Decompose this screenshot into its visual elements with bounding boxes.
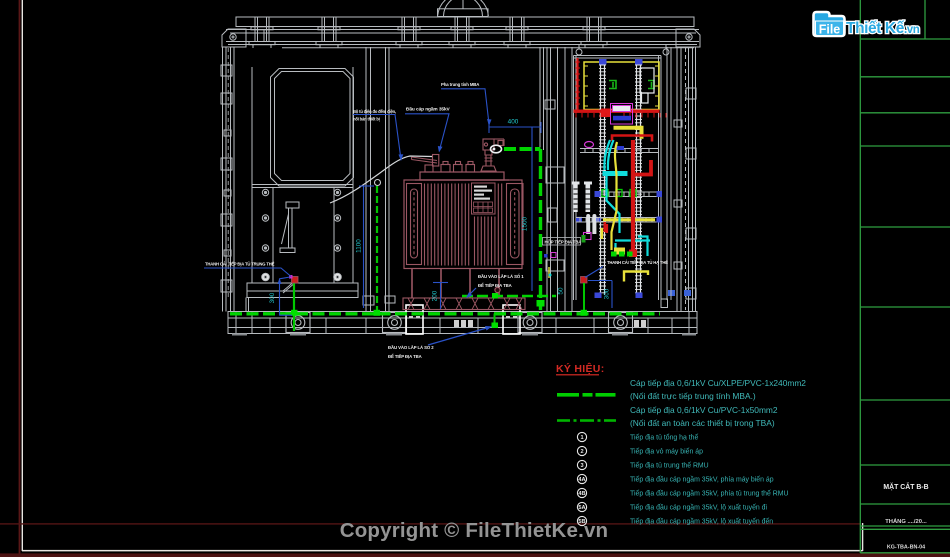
svg-text:(Nối đất trực tiếp trung tính: (Nối đất trực tiếp trung tính MBA.) — [630, 391, 756, 401]
svg-text:Tiếp địa đầu cáp ngầm 35kV, ph: Tiếp địa đầu cáp ngầm 35kV, phía máy biế… — [630, 475, 774, 484]
svg-text:50: 50 — [558, 287, 565, 295]
svg-text:400: 400 — [508, 119, 519, 126]
svg-text:300: 300 — [604, 288, 611, 299]
svg-text:Tiếp địa đầu cáp ngầm 35kV, ph: Tiếp địa đầu cáp ngầm 35kV, phía tủ trun… — [630, 489, 788, 498]
svg-text:ĐẦU VÀO LẮP LÁ SỐ 2: ĐẦU VÀO LẮP LÁ SỐ 2 — [388, 345, 434, 350]
svg-text:Pha trung tính MBA: Pha trung tính MBA — [441, 82, 479, 87]
svg-text:Tiếp địa tủ tổng hạ thế: Tiếp địa tủ tổng hạ thế — [630, 433, 698, 442]
svg-text:Tiếp địa tủ trung thế RMU: Tiếp địa tủ trung thế RMU — [630, 461, 709, 470]
svg-text:1: 1 — [580, 435, 583, 441]
svg-text:Đầu cáp ngầm 35kV: Đầu cáp ngầm 35kV — [406, 107, 451, 113]
svg-text:1100: 1100 — [356, 239, 363, 253]
svg-text:3: 3 — [580, 463, 583, 469]
svg-text:ĐẦU VÀO LẮP LÁ SỐ 1: ĐẦU VÀO LẮP LÁ SỐ 1 — [478, 274, 524, 279]
svg-text:300: 300 — [269, 292, 276, 303]
svg-text:2: 2 — [580, 449, 583, 455]
svg-text:Tiếp địa đầu cáp ngầm 35kV, lộ: Tiếp địa đầu cáp ngầm 35kV, lộ xuất tuyế… — [630, 517, 773, 526]
svg-text:Tiếp địa đầu cáp ngầm 35kV, lộ: Tiếp địa đầu cáp ngầm 35kV, lộ xuất tuyế… — [630, 503, 767, 512]
svg-text:HỘP TIẾP ĐỊA TBA: HỘP TIẾP ĐỊA TBA — [545, 240, 582, 245]
svg-text:200: 200 — [432, 290, 439, 301]
svg-text:THÁNG ..../20...: THÁNG ..../20... — [885, 518, 927, 525]
svg-text:ĐỂ TIẾP ĐỊA TBA: ĐỂ TIẾP ĐỊA TBA — [388, 354, 422, 359]
svg-text:File: File — [819, 22, 841, 36]
svg-text:Copyright © FileThietKe.vn: Copyright © FileThietKe.vn — [340, 519, 609, 542]
svg-text:ĐỂ TIẾP ĐỊA TBA: ĐỂ TIẾP ĐỊA TBA — [478, 283, 512, 288]
svg-text:nối bản thiết bị: nối bản thiết bị — [353, 117, 380, 122]
svg-text:Tiếp địa vỏ máy biến áp: Tiếp địa vỏ máy biến áp — [630, 447, 703, 456]
svg-text:Cáp tiếp địa 0,6/1kV Cu/XLPE/P: Cáp tiếp địa 0,6/1kV Cu/XLPE/PVC-1x240mm… — [630, 378, 806, 388]
svg-text:4B: 4B — [578, 491, 585, 497]
svg-text:MẶT CẮT B-B: MẶT CẮT B-B — [883, 482, 928, 491]
svg-text:Cáp tiếp địa 0,6/1kV Cu/PVC-1x: Cáp tiếp địa 0,6/1kV Cu/PVC-1x50mm2 — [630, 405, 778, 415]
svg-text:Bộ tủ điện đo đếm điện,: Bộ tủ điện đo đếm điện, — [353, 109, 396, 114]
svg-text:THANH CÁI TIẾP ĐỊA TỦ TRUNG TH: THANH CÁI TIẾP ĐỊA TỦ TRUNG THẾ — [205, 262, 275, 267]
svg-text:1500: 1500 — [522, 216, 529, 231]
svg-text:4A: 4A — [578, 477, 585, 483]
svg-text:(Nối đất an toàn các thiết bị: (Nối đất an toàn các thiết bị trong TBA) — [630, 418, 775, 428]
svg-text:KG-TBA-BN-04: KG-TBA-BN-04 — [887, 545, 925, 551]
svg-text:5A: 5A — [578, 505, 585, 511]
svg-text:THANH CÁI TIẾP ĐỊA TỦ HẠ THẾ: THANH CÁI TIẾP ĐỊA TỦ HẠ THẾ — [607, 260, 668, 265]
svg-text:KÝ HIỆU:: KÝ HIỆU: — [556, 362, 605, 375]
